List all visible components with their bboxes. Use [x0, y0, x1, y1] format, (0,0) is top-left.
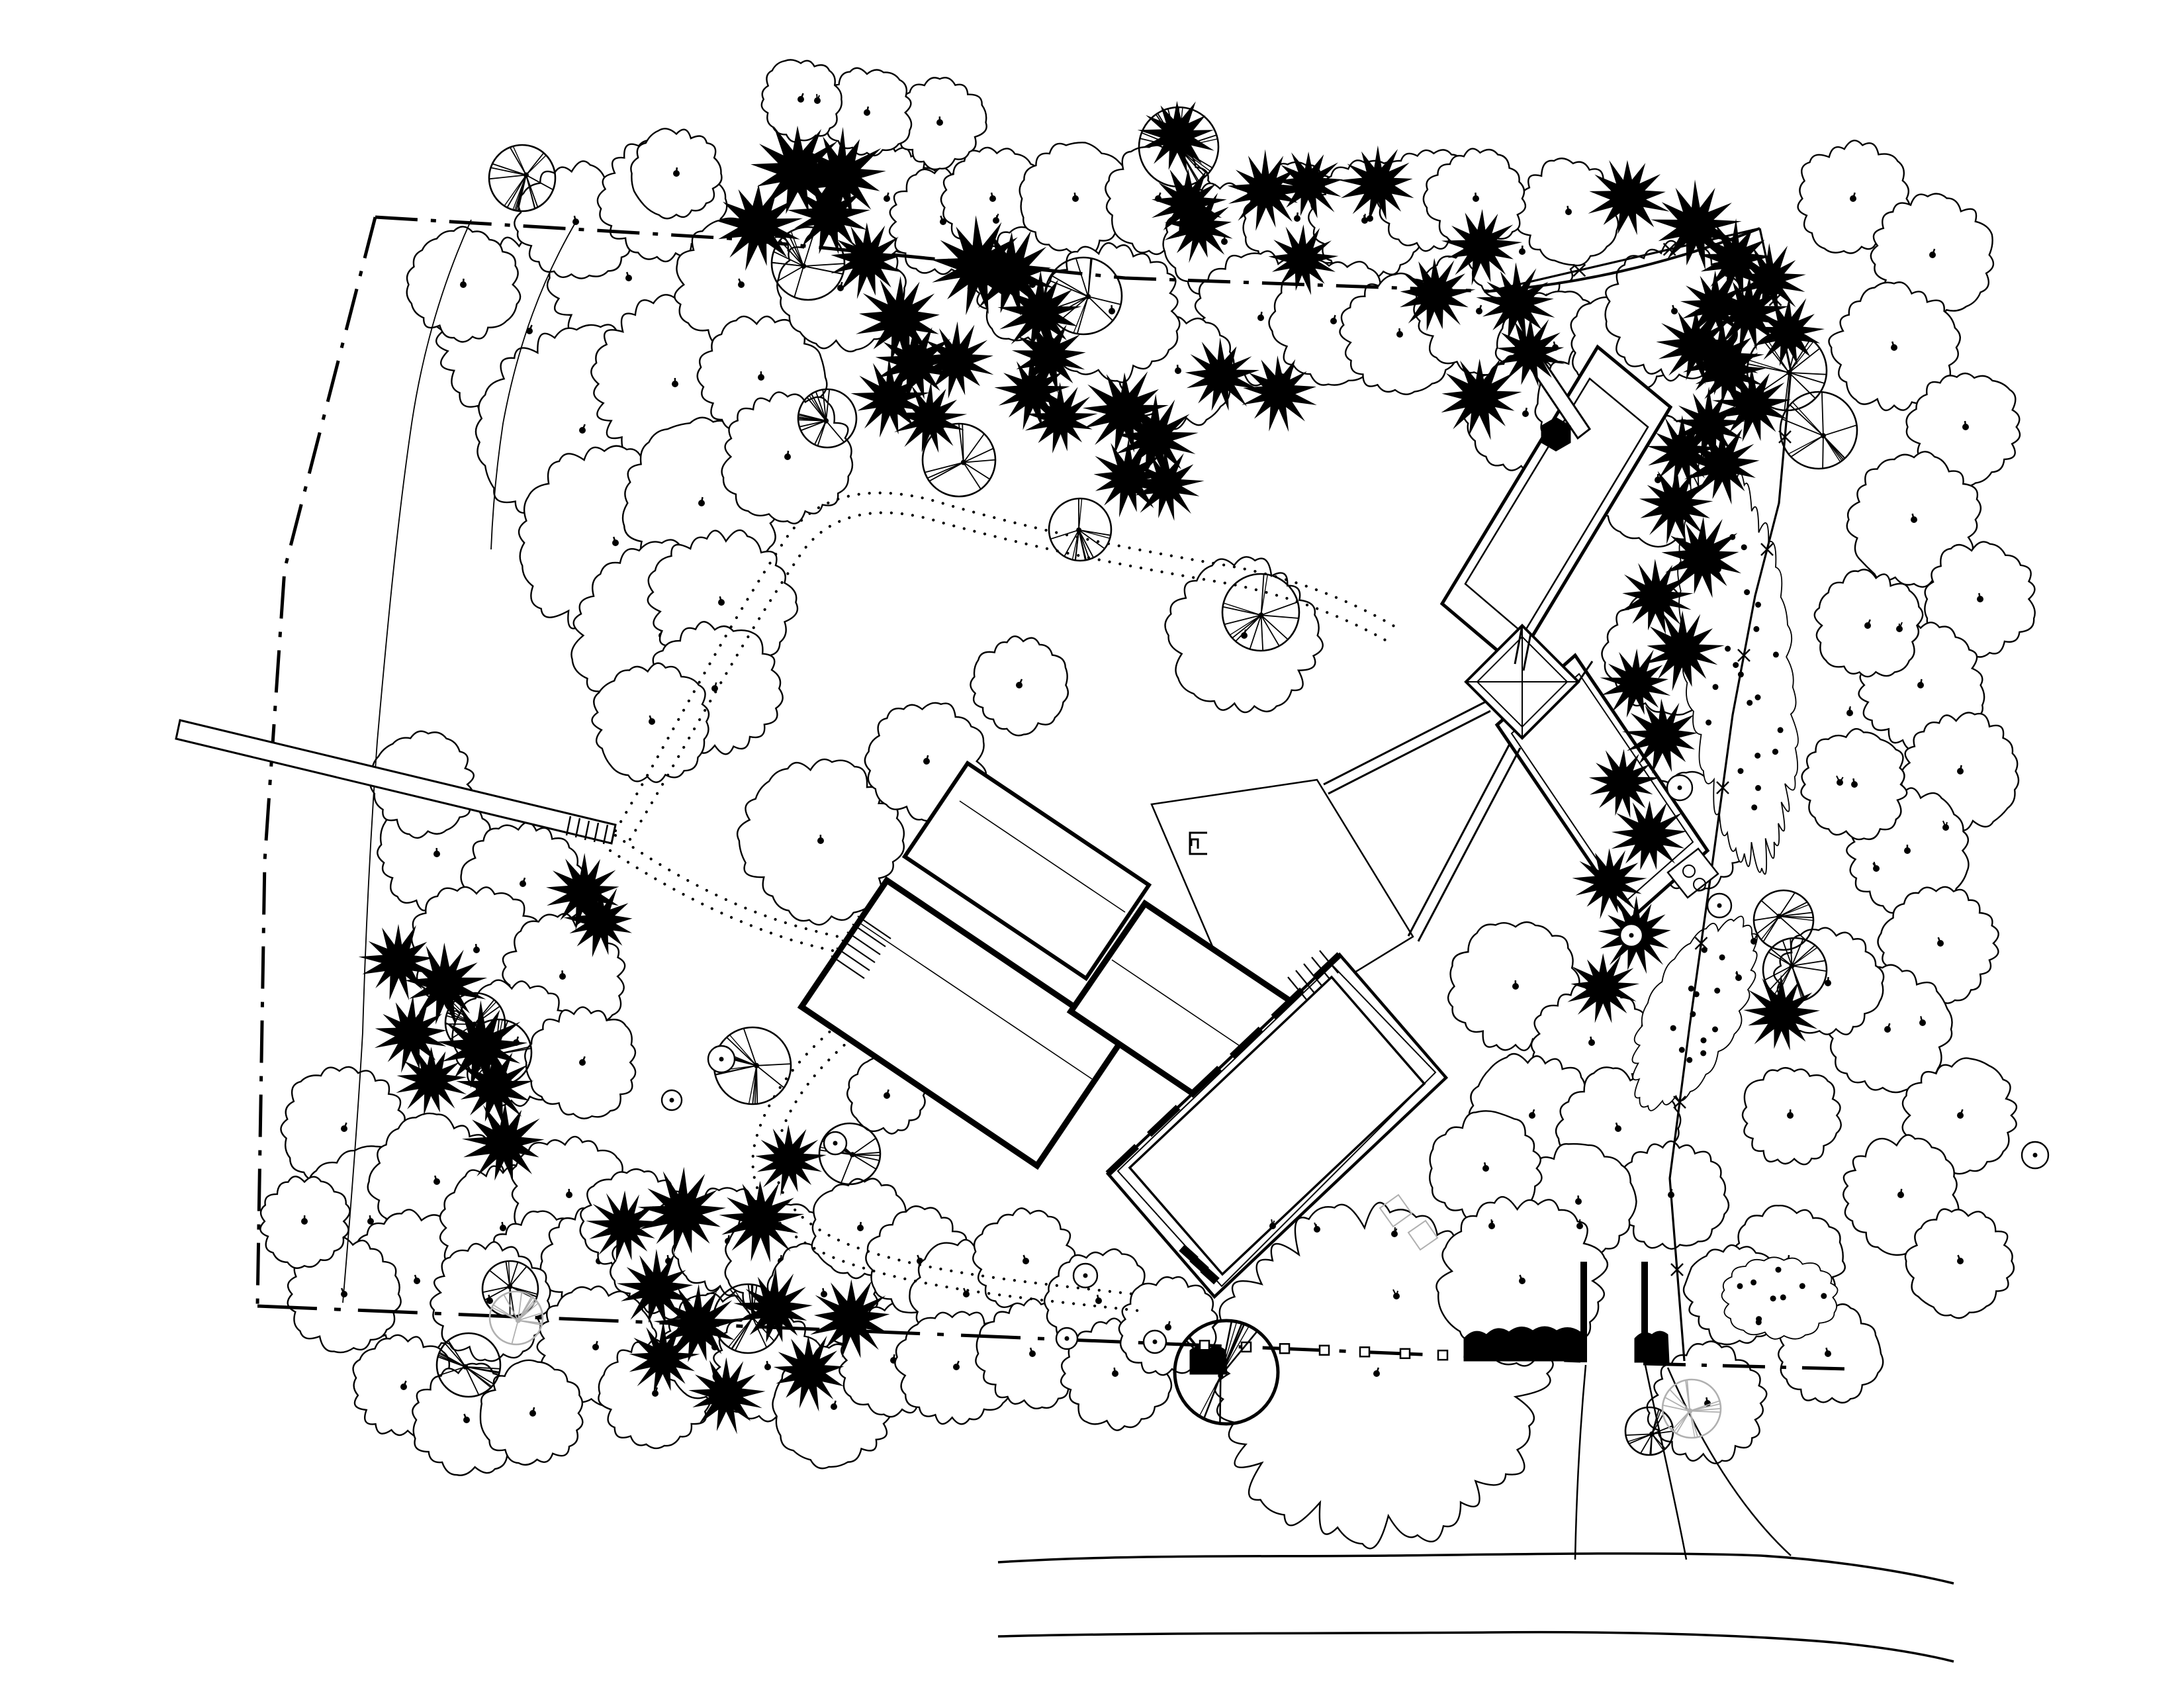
existing-tree-hub [1076, 528, 1081, 533]
existing-tree-spoke [1823, 425, 1857, 436]
shrub-dot [1717, 904, 1722, 908]
existing-tree-hub [1687, 1409, 1692, 1414]
tree-trunk-tick [702, 497, 703, 503]
shrub-mass-dot [1753, 626, 1759, 632]
shrub-mass-dot [1778, 727, 1784, 733]
shrub-mass-dot [1719, 955, 1725, 961]
tree-trunk-tick [1568, 206, 1569, 212]
tree-trunk-tick [370, 1215, 371, 1221]
existing-tree-spoke [852, 1152, 880, 1155]
shrub-mass-dot [1751, 1280, 1756, 1286]
shrub-dot [2033, 1153, 2038, 1158]
sapling-sprig-stem [1850, 706, 1850, 713]
shrub-mass-dot [1772, 749, 1778, 755]
existing-tree-hub [516, 1318, 521, 1323]
tree-trunk-tick [502, 1222, 503, 1228]
existing-tree-spoke [964, 463, 990, 479]
shrub-mass-dot [1670, 1025, 1676, 1031]
fence-post [1200, 1340, 1209, 1350]
tree-trunk-tick [676, 167, 677, 173]
existing-tree-spoke [489, 175, 526, 179]
shrub-mass-dot [1737, 1283, 1743, 1289]
site-plan-drawing [0, 0, 2184, 1688]
shrub-mass-dot [1688, 986, 1694, 992]
existing-tree-hub [1218, 1373, 1223, 1378]
existing-tree-hub [1821, 433, 1826, 438]
driveway-edge-left [1575, 1365, 1586, 1560]
existing-tree-spoke [1790, 405, 1823, 436]
hedge-band [1635, 1331, 1669, 1362]
existing-tree-spoke [852, 1138, 876, 1154]
shrub-mass-dot [1713, 684, 1719, 690]
shrub-dot [833, 1141, 838, 1146]
tree-trunk-tick [1177, 365, 1178, 371]
shrub-mass-dot [1706, 720, 1711, 726]
shrub-mass-dot [1744, 589, 1750, 595]
shrub-mass-dot [1714, 988, 1720, 994]
existing-tree-spoke [1791, 436, 1823, 457]
gate-post-bar [1641, 1262, 1648, 1362]
tree-trunk-tick [1979, 593, 1980, 599]
road-edge-top [998, 1554, 1954, 1583]
shrub-mass-dot [1754, 753, 1760, 759]
tree-trunk-tick [1965, 421, 1966, 427]
existing-tree-hub [463, 1364, 468, 1370]
shrub-mass-dot [1679, 1047, 1685, 1053]
conifer-tree [375, 996, 447, 1073]
existing-tree-spoke [1220, 1376, 1220, 1423]
tree-trunk-tick [563, 970, 563, 976]
walkway-lines-line [1324, 702, 1486, 784]
tree-trunk-tick [1828, 977, 1829, 983]
shrub-mass-dot [1725, 646, 1731, 652]
tree-trunk-tick [1853, 778, 1854, 784]
tree-trunk-tick [1901, 1189, 1901, 1195]
shrub-mass-dot [1756, 1316, 1762, 1322]
existing-tree-hub [1649, 1431, 1655, 1436]
existing-tree-hub [1776, 914, 1782, 919]
shrub-mass-dot [1755, 694, 1761, 700]
tree-trunk-tick [788, 451, 788, 457]
tree-trunk-tick [463, 279, 464, 285]
tree-trunk-tick [1960, 765, 1962, 771]
tree-trunk-tick [1921, 679, 1922, 685]
tree-trunk-tick [1399, 328, 1400, 334]
shrub-mass-dot [1755, 785, 1761, 791]
shrub-mass-dot [1738, 768, 1744, 774]
tree-trunk-tick [893, 1354, 894, 1360]
tree-trunk-tick [1706, 1397, 1707, 1403]
tree-trunk-tick [867, 107, 868, 113]
existing-tree-hub [523, 172, 529, 177]
tree-trunk-tick [1115, 1368, 1115, 1374]
walkway-lines-line [1408, 743, 1510, 936]
shrub-mass-dot [1701, 1037, 1707, 1043]
existing-tree-spoke [1823, 436, 1823, 469]
existing-tree-spoke [756, 1064, 791, 1066]
shrub-mass-dot [1776, 1267, 1782, 1273]
existing-tree-hub [1259, 612, 1264, 618]
tree-trunk-tick [1297, 212, 1298, 218]
existing-tree-hub [823, 418, 829, 424]
tree-trunk-tick [1261, 312, 1262, 318]
tree-trunk-tick [1475, 193, 1476, 199]
existing-tree-spoke [526, 153, 544, 175]
existing-tree-hub [507, 1284, 512, 1289]
existing-tree-hub [754, 1063, 759, 1068]
shrub-dot [1083, 1274, 1088, 1278]
tree-trunk-tick [860, 1222, 861, 1228]
shrub-dot [1065, 1336, 1069, 1341]
walkway-lines-line [1418, 748, 1520, 941]
shrub-mass-dot [1747, 700, 1752, 706]
shrub-mass-dot [1700, 1051, 1706, 1056]
fence-post [1360, 1347, 1369, 1356]
existing-tree-hub [1790, 963, 1795, 968]
fence-post [1400, 1349, 1410, 1358]
conifer-tree [1132, 447, 1205, 521]
shrub-mass-dot [1821, 1293, 1827, 1299]
existing-tree-hub [801, 263, 806, 269]
existing-tree-spoke [1793, 402, 1823, 436]
shrub-dot [1153, 1340, 1158, 1344]
existing-tree-spoke [841, 1154, 852, 1183]
shrub-mass-dot [1770, 1295, 1776, 1301]
site-plan-page [0, 0, 2184, 1688]
existing-tree-spoke [1823, 436, 1841, 462]
shrub-dot [1629, 933, 1634, 938]
road-edge-bottom [998, 1632, 1954, 1662]
shrub-mass-dot [1712, 1027, 1718, 1033]
shrub-dot [670, 1098, 674, 1103]
existing-tree-spoke [1822, 392, 1823, 436]
shrub-mass-dot [1780, 1294, 1786, 1300]
gate-post-bar [1580, 1262, 1587, 1362]
walkway-lines-line [1328, 711, 1490, 794]
fence-post [1280, 1344, 1289, 1353]
shrub-mass-dot [1741, 544, 1747, 550]
existing-tree-spoke [964, 463, 981, 489]
existing-tree-spoke [513, 146, 526, 175]
tree-trunk-tick [668, 1255, 668, 1261]
tree-trunk-tick [823, 1288, 824, 1294]
tree-trunk-tick [1590, 1037, 1592, 1043]
shrub-mass-dot [1751, 804, 1757, 810]
existing-tree-hub [1786, 370, 1792, 375]
shrub-mass-dot [1755, 602, 1761, 608]
existing-tree-hub [850, 1152, 855, 1157]
tree-trunk-tick [1525, 408, 1527, 414]
shrub-mass-dot [1773, 651, 1779, 657]
existing-tree-spoke [1823, 436, 1843, 459]
shrub-mass-dot [1799, 1283, 1805, 1289]
fence-post [1320, 1346, 1329, 1355]
shrub-mass-dot [1686, 1057, 1692, 1063]
shrub-dot [719, 1057, 724, 1062]
existing-tree-spoke [756, 1066, 784, 1088]
shrub-mass-dot [1733, 662, 1739, 668]
existing-tree-spoke [1788, 436, 1823, 454]
existing-tree-spoke [1761, 900, 1779, 916]
sapling-sprig-stem [1580, 1219, 1580, 1226]
conifer-tree [755, 1125, 827, 1196]
fence-post [1438, 1350, 1447, 1360]
existing-tree-spoke [1779, 916, 1805, 940]
existing-tree-hub [1085, 294, 1091, 299]
existing-tree-hub [961, 460, 966, 465]
tree-trunk-tick [767, 1361, 768, 1367]
tree-trunk-tick [476, 944, 477, 950]
existing-tree-spoke [1079, 530, 1093, 558]
tree-trunk-tick [1484, 1162, 1486, 1168]
tree-trunk-tick [1097, 1295, 1099, 1301]
existing-tree-spoke [929, 463, 964, 481]
shrub-dot [1678, 786, 1682, 790]
tree-trunk-tick [1075, 193, 1075, 199]
